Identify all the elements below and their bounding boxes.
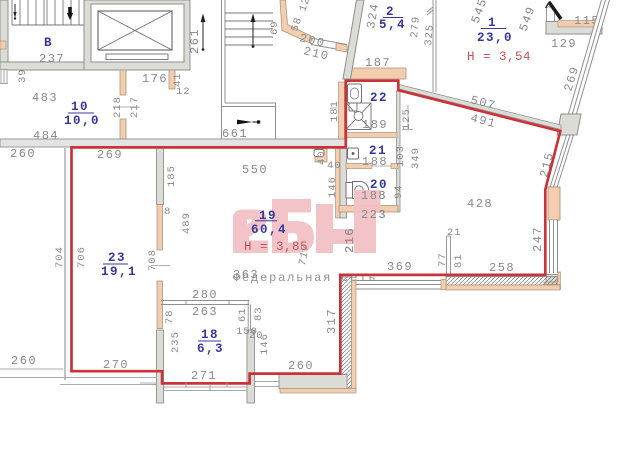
svg-text:260: 260 xyxy=(10,147,36,161)
svg-text:280: 280 xyxy=(192,288,218,302)
svg-text:103: 103 xyxy=(395,145,407,167)
svg-text:189: 189 xyxy=(362,118,388,132)
svg-text:Н = 3,54: Н = 3,54 xyxy=(467,50,531,64)
svg-text:237: 237 xyxy=(39,52,65,66)
svg-text:83: 83 xyxy=(253,306,265,321)
svg-text:260: 260 xyxy=(11,354,37,368)
svg-text:483: 483 xyxy=(32,91,58,105)
svg-text:129: 129 xyxy=(551,37,577,51)
svg-text:369: 369 xyxy=(387,260,413,274)
svg-text:78: 78 xyxy=(164,309,176,324)
svg-text:187: 187 xyxy=(365,56,391,70)
svg-text:247: 247 xyxy=(531,226,545,252)
svg-text:261: 261 xyxy=(188,28,202,54)
svg-text:10: 10 xyxy=(71,100,89,114)
svg-text:6,3: 6,3 xyxy=(197,342,224,356)
svg-text:12: 12 xyxy=(176,86,191,98)
svg-text:325: 325 xyxy=(423,23,437,46)
svg-text:40: 40 xyxy=(327,160,342,172)
svg-text:489: 489 xyxy=(181,212,193,234)
svg-text:125: 125 xyxy=(401,108,413,130)
svg-text:216: 216 xyxy=(343,227,357,253)
svg-text:269: 269 xyxy=(97,148,123,162)
svg-text:218: 218 xyxy=(112,96,124,118)
svg-text:704: 704 xyxy=(54,246,66,268)
svg-text:10,0: 10,0 xyxy=(64,114,100,128)
svg-text:60,4: 60,4 xyxy=(251,223,287,237)
svg-text:317: 317 xyxy=(325,308,339,334)
svg-text:18: 18 xyxy=(201,328,219,342)
svg-text:217: 217 xyxy=(129,96,141,118)
svg-text:5,4: 5,4 xyxy=(379,18,406,32)
svg-text:23: 23 xyxy=(108,251,126,265)
svg-text:19,1: 19,1 xyxy=(101,265,137,279)
svg-text:279: 279 xyxy=(409,15,423,38)
svg-text:706: 706 xyxy=(76,246,88,268)
svg-text:260: 260 xyxy=(288,359,314,373)
svg-text:428: 428 xyxy=(467,197,493,211)
svg-text:263: 263 xyxy=(192,305,218,319)
svg-text:94: 94 xyxy=(393,184,405,199)
svg-text:1: 1 xyxy=(488,16,497,30)
svg-text:В: В xyxy=(44,36,53,50)
svg-text:185: 185 xyxy=(166,165,178,187)
svg-text:223: 223 xyxy=(361,208,387,222)
svg-text:176: 176 xyxy=(142,72,168,86)
svg-text:Федеральная сеть: Федеральная сеть xyxy=(233,271,377,285)
svg-text:77: 77 xyxy=(437,252,449,267)
svg-text:61: 61 xyxy=(237,307,249,322)
svg-text:23,0: 23,0 xyxy=(477,31,513,45)
svg-text:349: 349 xyxy=(410,147,422,169)
svg-text:258: 258 xyxy=(489,261,515,275)
svg-text:2: 2 xyxy=(386,5,395,19)
svg-text:22: 22 xyxy=(370,91,388,105)
svg-text:235: 235 xyxy=(170,331,182,353)
svg-text:188: 188 xyxy=(362,155,388,169)
svg-text:81: 81 xyxy=(453,253,465,268)
svg-text:21: 21 xyxy=(447,227,462,239)
svg-text:550: 550 xyxy=(242,163,268,177)
svg-text:69: 69 xyxy=(269,20,281,35)
svg-text:188: 188 xyxy=(361,189,387,203)
svg-text:146: 146 xyxy=(327,176,339,198)
svg-text:708: 708 xyxy=(147,249,159,271)
svg-text:39: 39 xyxy=(17,68,29,83)
svg-text:8: 8 xyxy=(164,206,171,218)
svg-text:41: 41 xyxy=(172,72,184,87)
svg-text:271: 271 xyxy=(191,369,217,383)
svg-text:146: 146 xyxy=(259,333,271,355)
